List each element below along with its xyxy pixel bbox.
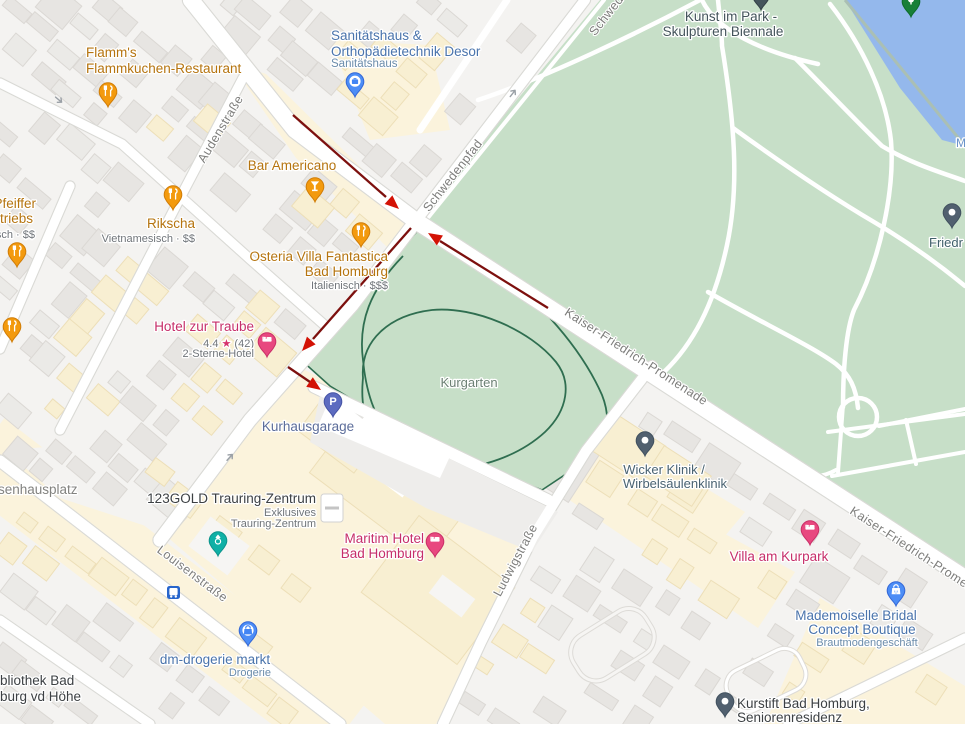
svg-text:Bar Americano: Bar Americano — [248, 158, 337, 173]
svg-text:Kurstift Bad Homburg,: Kurstift Bad Homburg, — [737, 696, 870, 711]
svg-text:Skulpturen Biennale: Skulpturen Biennale — [663, 24, 784, 39]
svg-text:Villa am Kurpark: Villa am Kurpark — [730, 549, 829, 564]
svg-text:isch · $$: isch · $$ — [0, 229, 35, 241]
svg-text:Wirbelsäulenklinik: Wirbelsäulenklinik — [623, 476, 728, 491]
svg-text:Vietnamesisch · $$: Vietnamesisch · $$ — [102, 233, 195, 245]
svg-text:Bad Homburg: Bad Homburg — [305, 264, 388, 279]
svg-text:123GOLD Trauring-Zentrum: 123GOLD Trauring-Zentrum — [147, 491, 316, 506]
svg-text:Osteria Villa Fantastica: Osteria Villa Fantastica — [249, 249, 388, 264]
svg-text:Seniorenresidenz: Seniorenresidenz — [737, 710, 842, 724]
svg-text:Orthopädietechnik Desor: Orthopädietechnik Desor — [331, 44, 481, 59]
svg-text:dm-drogerie markt: dm-drogerie markt — [160, 652, 271, 667]
svg-text:Flammkuchen-Restaurant: Flammkuchen-Restaurant — [86, 61, 242, 76]
svg-text:bliothek Bad: bliothek Bad — [0, 673, 74, 688]
svg-text:M: M — [956, 136, 965, 150]
svg-text:Trauring-Zentrum: Trauring-Zentrum — [231, 518, 316, 530]
svg-text:2-Sterne-Hotel: 2-Sterne-Hotel — [182, 348, 254, 360]
svg-text:Brautmodengeschäft: Brautmodengeschäft — [816, 637, 918, 649]
svg-text:senhausplatz: senhausplatz — [0, 482, 78, 497]
svg-text:Pfeiffer: Pfeiffer — [0, 196, 36, 211]
svg-text:Bad Homburg: Bad Homburg — [341, 546, 424, 561]
svg-text:burg vd Höhe: burg vd Höhe — [0, 689, 81, 704]
svg-text:Mademoiselle Bridal: Mademoiselle Bridal — [795, 608, 917, 623]
svg-text:Kunst im Park -: Kunst im Park - — [685, 9, 777, 24]
svg-text:P: P — [329, 396, 336, 408]
svg-text:Flamm's: Flamm's — [86, 45, 137, 60]
svg-text:etriebs: etriebs — [0, 211, 33, 226]
svg-text:Sanitätshaus &: Sanitätshaus & — [331, 28, 422, 43]
svg-text:Friedr: Friedr — [929, 235, 964, 250]
svg-text:Kurgarten: Kurgarten — [440, 375, 497, 390]
svg-text:Drogerie: Drogerie — [229, 667, 271, 679]
svg-text:Maritim Hotel: Maritim Hotel — [344, 531, 424, 546]
svg-text:Rikscha: Rikscha — [147, 216, 196, 231]
svg-text:Hotel zur Traube: Hotel zur Traube — [154, 319, 254, 334]
svg-text:Sanitätshaus: Sanitätshaus — [331, 58, 398, 70]
svg-text:Wicker Klinik /: Wicker Klinik / — [623, 462, 705, 477]
svg-text:Kurhausgarage: Kurhausgarage — [262, 419, 354, 434]
svg-text:Italienisch · $$$: Italienisch · $$$ — [311, 280, 388, 292]
svg-text:Concept Boutique: Concept Boutique — [808, 622, 915, 637]
